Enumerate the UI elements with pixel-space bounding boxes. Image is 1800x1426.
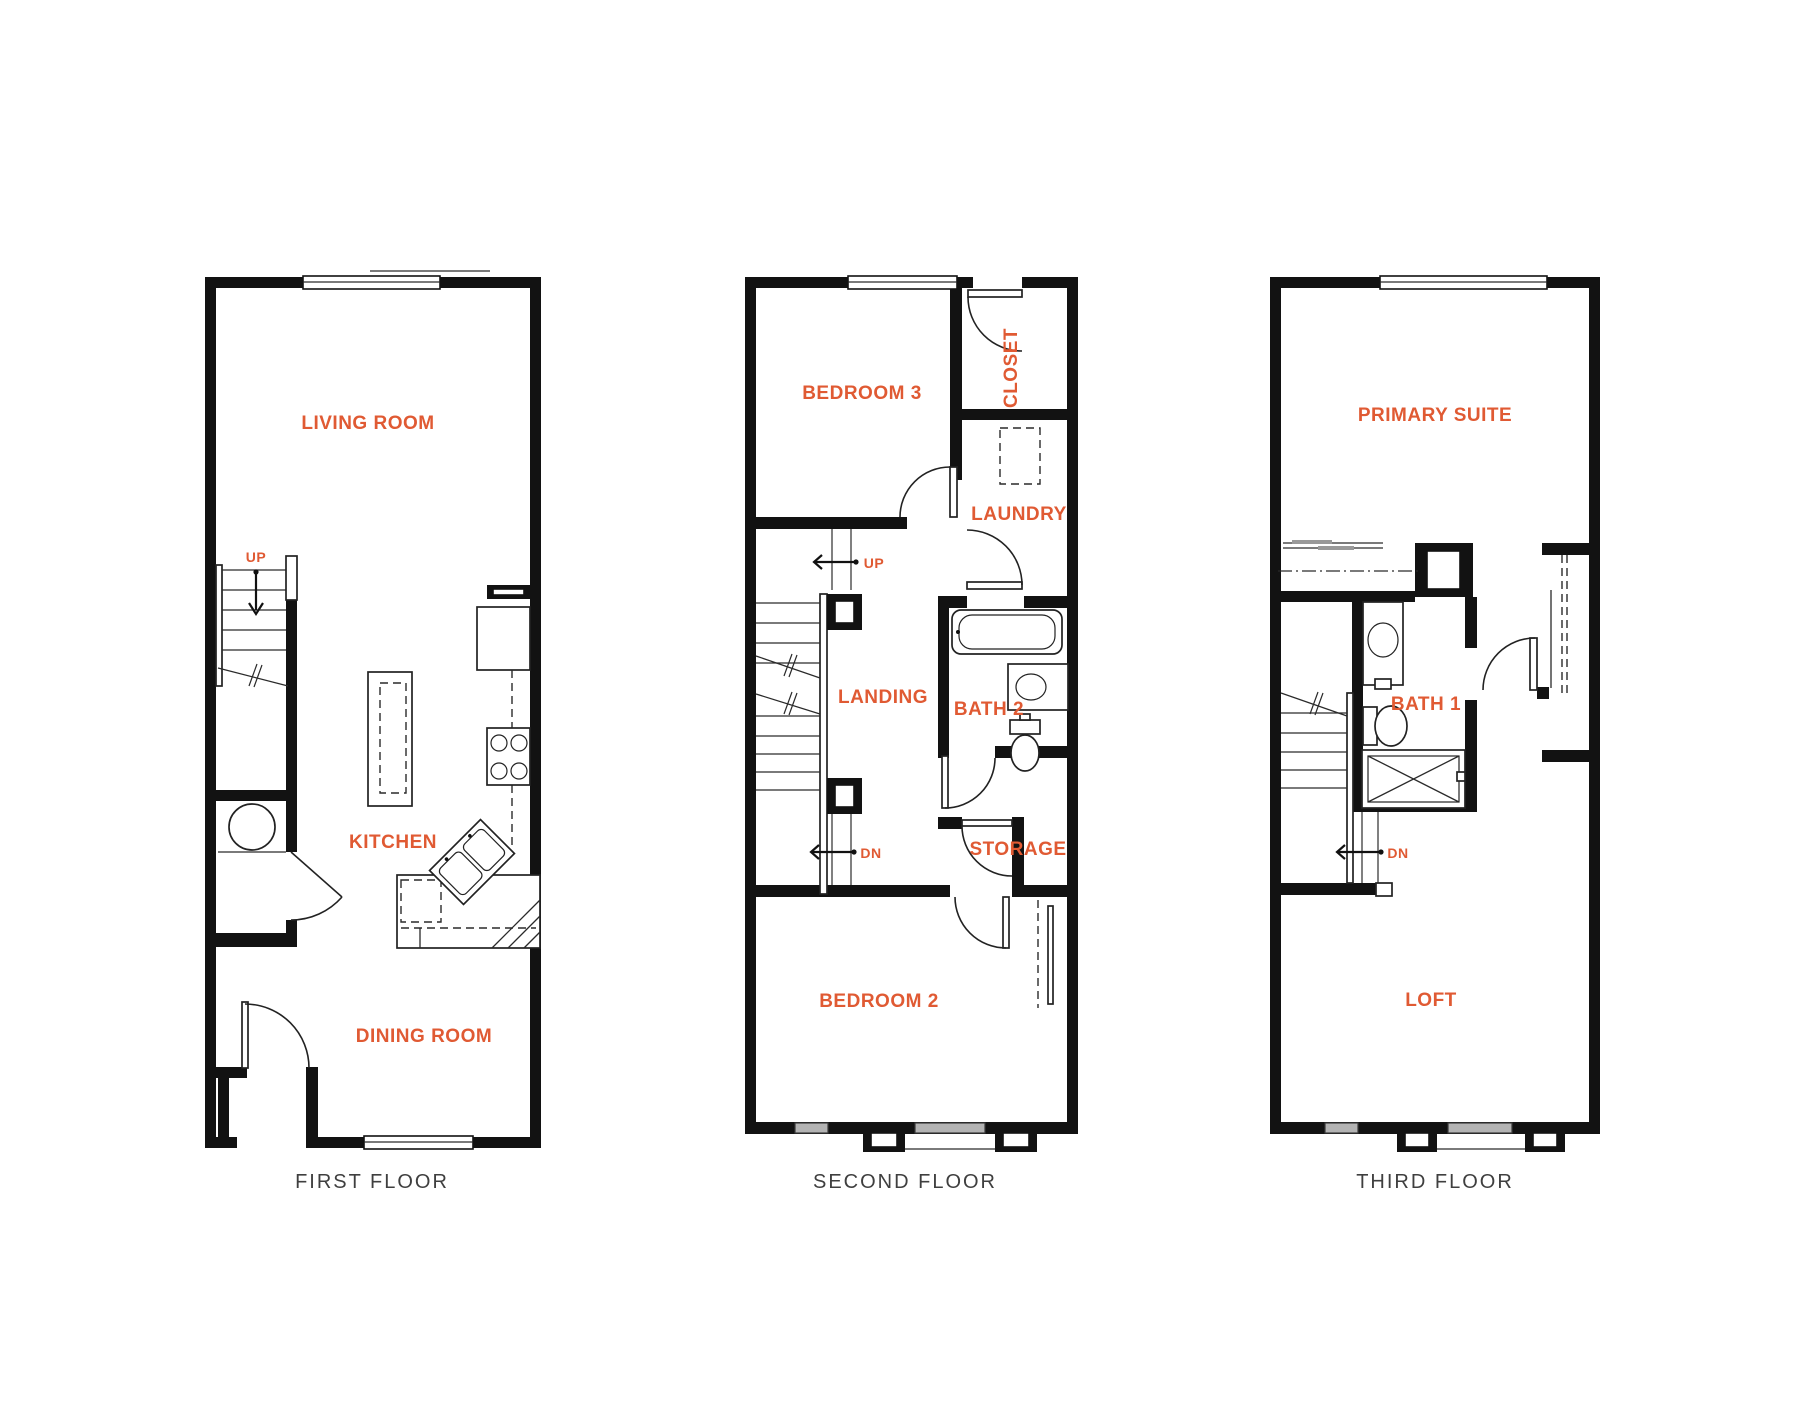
bathroom-sink — [1363, 602, 1403, 689]
stair-label-dn-second: DN — [860, 845, 881, 861]
stair-label-up-second: UP — [864, 555, 884, 571]
floor-caption-third: THIRD FLOOR — [1356, 1171, 1514, 1193]
staircase — [756, 529, 862, 894]
room-label-living-room: LIVING ROOM — [301, 413, 434, 434]
room-label-bedroom2: BEDROOM 2 — [819, 991, 939, 1012]
toilet — [1010, 714, 1040, 771]
stair-label-dn-third: DN — [1387, 845, 1408, 861]
walk-in-closet — [1551, 555, 1567, 693]
bedroom2-closet — [1038, 900, 1053, 1008]
washer-dryer — [1000, 428, 1040, 484]
room-label-dining-room: DINING ROOM — [356, 1026, 492, 1047]
closet-door — [291, 852, 342, 920]
room-label-primary-suite: PRIMARY SUITE — [1358, 405, 1512, 426]
room-label-bath2: BATH 2 — [954, 699, 1024, 720]
bathtub — [952, 610, 1062, 654]
kitchen-island — [368, 672, 412, 806]
floorplan-svg: LIVING ROOM UP KITCHEN DINING ROOM FIRST… — [0, 0, 1800, 1426]
second-floor-plan: BEDROOM 3 CLOSET LAUNDRY UP LANDING BATH… — [745, 276, 1078, 1193]
up-arrow — [814, 555, 859, 569]
room-label-kitchen: KITCHEN — [349, 832, 437, 853]
stair-label-up-first: UP — [246, 549, 266, 565]
room-label-bedroom3: BEDROOM 3 — [802, 383, 922, 404]
suite-wardrobe — [1278, 540, 1420, 571]
room-label-loft: LOFT — [1405, 990, 1457, 1011]
first-floor-plan: LIVING ROOM UP KITCHEN DINING ROOM FIRST… — [205, 271, 541, 1193]
floorplan-canvas: LIVING ROOM UP KITCHEN DINING ROOM FIRST… — [0, 0, 1800, 1426]
room-label-closet: CLOSET — [1001, 328, 1022, 408]
stove — [487, 728, 530, 785]
room-label-landing: LANDING — [838, 687, 928, 708]
room-label-bath1: BATH 1 — [1391, 694, 1461, 715]
floor-caption-second: SECOND FLOOR — [813, 1171, 997, 1193]
dn-arrow — [1337, 845, 1384, 859]
refrigerator — [477, 585, 530, 670]
room-label-laundry: LAUNDRY — [971, 504, 1067, 525]
room-label-storage: STORAGE — [969, 839, 1066, 860]
laundry-door — [967, 530, 1022, 589]
kitchen-counter — [397, 670, 540, 948]
entry-door — [242, 1002, 309, 1068]
shower — [1362, 750, 1465, 808]
dn-arrow — [811, 845, 857, 859]
water-heater — [229, 804, 275, 850]
third-floor-plan: PRIMARY SUITE BATH 1 DN LOFT THIRD FLOOR — [1270, 276, 1600, 1193]
bath2-door — [942, 756, 995, 808]
up-arrow — [249, 569, 263, 614]
bath1-door — [1483, 638, 1537, 690]
bedroom3-door — [900, 467, 957, 517]
floor-caption-first: FIRST FLOOR — [295, 1171, 449, 1193]
bedroom2-door — [955, 897, 1009, 948]
